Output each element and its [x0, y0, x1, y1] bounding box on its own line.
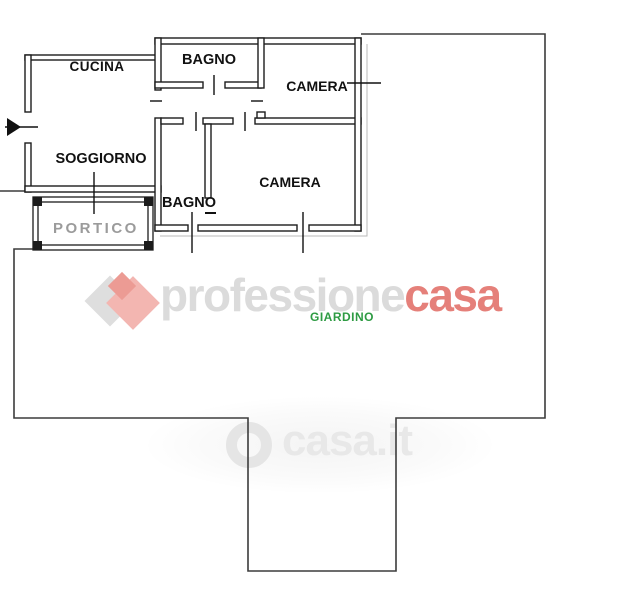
room-label-bagno-mid: BAGNO [162, 196, 216, 211]
room-label-soggiorno: SOGGIORNO [52, 152, 150, 167]
room-label-portico: PORTICO [53, 221, 133, 236]
room-label-camera-mid: CAMERA [257, 175, 323, 189]
room-label-camera-top: CAMERA [284, 79, 350, 93]
room-label-cucina: CUCINA [57, 60, 137, 74]
garden-boundary [0, 34, 545, 571]
room-label-bagno-top: BAGNO [178, 53, 240, 68]
floor-plan-page: professionecasa casa.it [0, 0, 634, 600]
entrance-door-arrow [7, 118, 21, 136]
room-label-giardino: GIARDINO [303, 311, 381, 323]
